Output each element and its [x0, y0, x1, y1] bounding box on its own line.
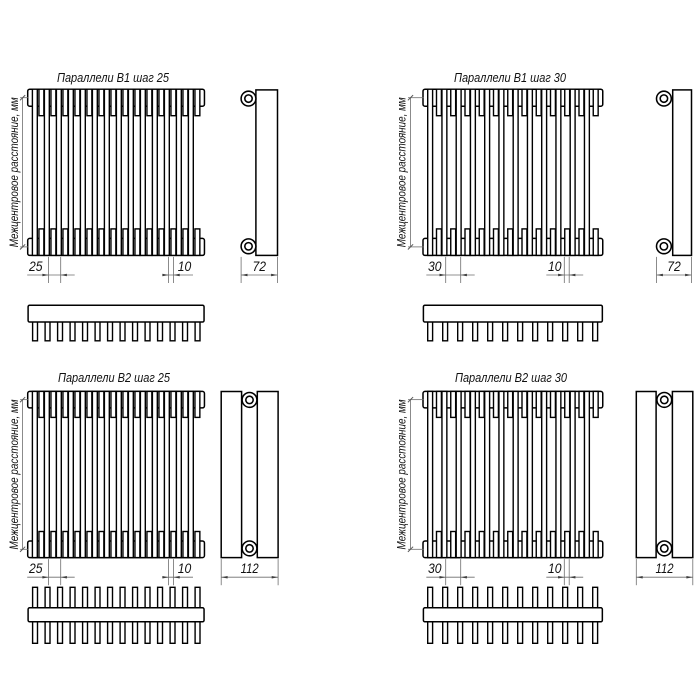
svg-text:Параллели В2 шаг 25: Параллели В2 шаг 25 — [58, 370, 171, 385]
svg-text:112: 112 — [241, 561, 259, 577]
svg-text:10: 10 — [548, 259, 562, 275]
svg-text:10: 10 — [548, 561, 562, 577]
svg-text:Межцентровое расстояние, мм: Межцентровое расстояние, мм — [7, 399, 21, 549]
svg-text:72: 72 — [667, 259, 681, 275]
svg-text:25: 25 — [28, 561, 42, 577]
svg-text:Параллели В1 шаг 30: Параллели В1 шаг 30 — [454, 70, 567, 85]
svg-text:72: 72 — [253, 259, 267, 275]
svg-text:Межцентровое расстояние, мм: Межцентровое расстояние, мм — [395, 97, 409, 247]
svg-text:25: 25 — [28, 259, 42, 275]
svg-text:Межцентровое расстояние, мм: Межцентровое расстояние, мм — [7, 97, 21, 247]
svg-text:Параллели В1 шаг 25: Параллели В1 шаг 25 — [57, 70, 170, 85]
svg-text:30: 30 — [428, 561, 442, 577]
svg-text:10: 10 — [178, 259, 192, 275]
svg-text:Параллели В2 шаг 30: Параллели В2 шаг 30 — [455, 370, 568, 385]
svg-text:10: 10 — [178, 561, 192, 577]
svg-text:112: 112 — [656, 561, 674, 577]
svg-text:Межцентровое расстояние, мм: Межцентровое расстояние, мм — [395, 399, 409, 549]
svg-text:30: 30 — [428, 259, 442, 275]
